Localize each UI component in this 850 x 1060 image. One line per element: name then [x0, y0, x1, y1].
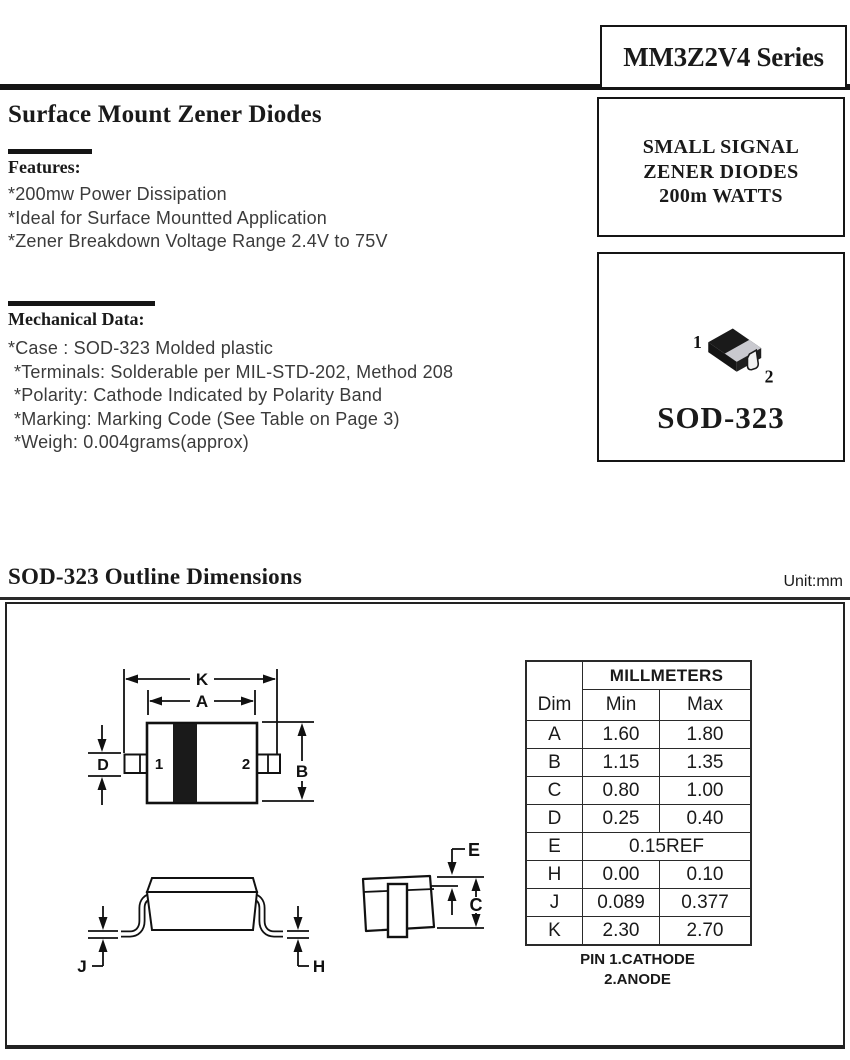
max-cell: 0.40 — [660, 805, 752, 833]
doc-title: Surface Mount Zener Diodes — [8, 101, 322, 129]
min-cell: 2.30 — [583, 917, 660, 946]
dim-label-j: J — [77, 957, 86, 976]
dim-label-h: H — [313, 957, 325, 976]
dim-label-b: B — [296, 762, 308, 781]
min-cell: 0.25 — [583, 805, 660, 833]
table-row: H 0.00 0.10 — [526, 861, 751, 889]
package-pin1-label: 1 — [693, 332, 702, 352]
dim-cell: B — [526, 749, 583, 777]
table-corner-cell — [526, 661, 583, 690]
dim-cell: A — [526, 721, 583, 749]
mechanical-list: *Case : SOD-323 Molded plastic *Terminal… — [8, 337, 453, 455]
signal-line: 200m WATTS — [599, 184, 843, 209]
mechanical-heading-bar — [8, 301, 155, 306]
max-cell: 0.10 — [660, 861, 752, 889]
dim-cell: C — [526, 777, 583, 805]
dim-label-k: K — [196, 670, 209, 689]
dim-cell: H — [526, 861, 583, 889]
feature-item: *Ideal for Surface Mountted Application — [8, 207, 388, 231]
features-list: *200mw Power Dissipation *Ideal for Surf… — [8, 183, 388, 254]
datasheet-page: MM3Z2V4 Series Surface Mount Zener Diode… — [0, 0, 850, 1060]
package-box: 1 2 SOD-323 — [597, 252, 845, 462]
features-heading-bar — [8, 149, 92, 154]
table-row: B 1.15 1.35 — [526, 749, 751, 777]
top-view-body — [125, 723, 281, 803]
dim-cell: K — [526, 917, 583, 946]
max-cell: 0.377 — [660, 889, 752, 917]
min-cell: 0.00 — [583, 861, 660, 889]
max-cell: 2.70 — [660, 917, 752, 946]
mechanical-item: *Terminals: Solderable per MIL-STD-202, … — [8, 361, 453, 385]
dim-label-c: C — [470, 895, 483, 915]
dim-cell: J — [526, 889, 583, 917]
pin-note-line: 2.ANODE — [520, 970, 755, 990]
package-pin2-label: 2 — [765, 367, 774, 387]
end-view-body — [363, 876, 434, 937]
mechanical-item: *Marking: Marking Code (See Table on Pag… — [8, 408, 453, 432]
table-row: D 0.25 0.40 — [526, 805, 751, 833]
series-title-box: MM3Z2V4 Series — [600, 25, 847, 89]
column-header-max: Max — [660, 690, 752, 721]
max-cell: 1.35 — [660, 749, 752, 777]
table-row: K 2.30 2.70 — [526, 917, 751, 946]
signal-line: ZENER DIODES — [599, 160, 843, 185]
signal-description: SMALL SIGNAL ZENER DIODES 200m WATTS — [599, 135, 843, 209]
dim-label-e: E — [468, 840, 480, 860]
section-rule — [0, 597, 850, 600]
min-cell: 0.089 — [583, 889, 660, 917]
column-header-min: Min — [583, 690, 660, 721]
pin-note: PIN 1.CATHODE 2.ANODE — [520, 950, 755, 990]
table-row: A 1.60 1.80 — [526, 721, 751, 749]
unit-label: Unit:mm — [783, 573, 843, 591]
table-row: J 0.089 0.377 — [526, 889, 751, 917]
min-cell: 0.80 — [583, 777, 660, 805]
outline-heading: SOD-323 Outline Dimensions — [8, 564, 302, 590]
table-group-header: MILLMETERS — [583, 661, 752, 690]
mechanical-heading: Mechanical Data: — [8, 309, 144, 330]
max-cell: 1.00 — [660, 777, 752, 805]
series-title: MM3Z2V4 Series — [623, 42, 824, 73]
min-cell: 1.60 — [583, 721, 660, 749]
package-name: SOD-323 — [599, 400, 843, 436]
dim-cell: E — [526, 833, 583, 861]
signal-line: SMALL SIGNAL — [599, 135, 843, 160]
column-header-dim: Dim — [526, 690, 583, 721]
features-heading: Features: — [8, 157, 81, 178]
table-row: Dim Min Max — [526, 690, 751, 721]
table-row: MILLMETERS — [526, 661, 751, 690]
pin-note-line: PIN 1.CATHODE — [520, 950, 755, 970]
topview-pin2-label: 2 — [242, 756, 250, 773]
max-cell: 1.80 — [660, 721, 752, 749]
mechanical-item: *Weigh: 0.004grams(approx) — [8, 431, 453, 455]
mechanical-item: *Case : SOD-323 Molded plastic — [8, 337, 453, 361]
table-row: C 0.80 1.00 — [526, 777, 751, 805]
dimensions-table: MILLMETERS Dim Min Max A 1.60 1.80 B 1.1… — [525, 660, 752, 946]
side-view-body — [121, 878, 283, 934]
mechanical-item: *Polarity: Cathode Indicated by Polarity… — [8, 384, 453, 408]
feature-item: *Zener Breakdown Voltage Range 2.4V to 7… — [8, 230, 388, 254]
signal-description-box: SMALL SIGNAL ZENER DIODES 200m WATTS — [597, 97, 845, 237]
dim-label-d: D — [97, 757, 109, 774]
topview-pin1-label: 1 — [155, 756, 163, 773]
feature-item: *200mw Power Dissipation — [8, 183, 388, 207]
min-cell: 1.15 — [583, 749, 660, 777]
table-row: E 0.15REF — [526, 833, 751, 861]
dim-cell: D — [526, 805, 583, 833]
dim-label-a: A — [196, 692, 208, 711]
span-cell: 0.15REF — [583, 833, 752, 861]
